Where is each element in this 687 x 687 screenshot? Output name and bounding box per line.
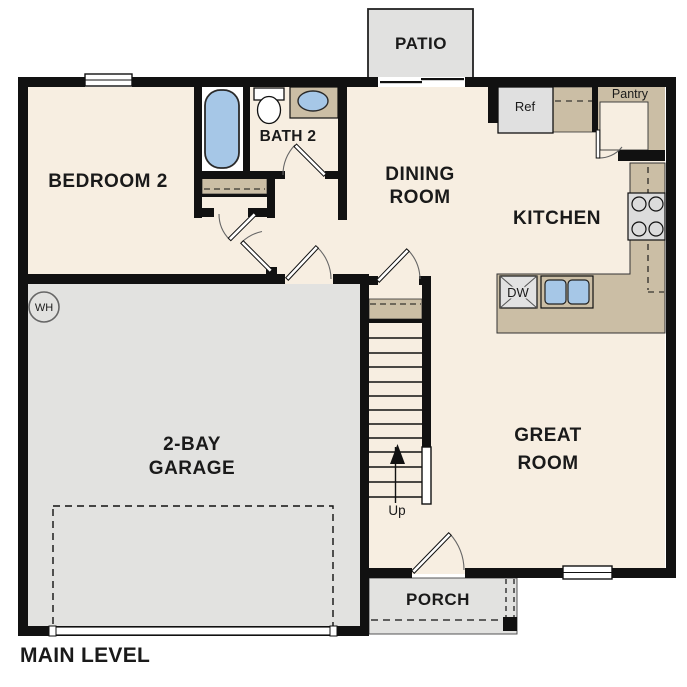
refrigerator-label: Ref bbox=[515, 99, 536, 114]
wall-segment bbox=[465, 77, 676, 87]
door-leaf bbox=[596, 130, 600, 158]
wall-segment bbox=[612, 568, 676, 578]
wall-segment bbox=[592, 87, 598, 132]
wall-segment bbox=[18, 77, 28, 636]
water-heater-label: WH bbox=[35, 302, 53, 314]
wall-segment bbox=[18, 77, 85, 87]
sink-basin bbox=[568, 280, 589, 304]
garage-door bbox=[49, 626, 337, 636]
garage-label: GARAGE bbox=[149, 458, 235, 479]
wall-segment bbox=[333, 274, 360, 284]
kitchen-label: KITCHEN bbox=[513, 208, 601, 229]
bath2-label: BATH 2 bbox=[260, 128, 317, 145]
closet-shelf bbox=[202, 178, 267, 194]
bedroom-closet bbox=[202, 178, 267, 197]
wall-segment bbox=[325, 171, 347, 179]
wall-segment bbox=[194, 171, 285, 179]
counter bbox=[553, 87, 598, 132]
stairs-up-label: Up bbox=[388, 503, 405, 518]
water-heater-icon: WH bbox=[29, 292, 59, 322]
closet-edge bbox=[202, 194, 267, 197]
kitchen-sink-icon bbox=[541, 276, 593, 308]
closet-shelf bbox=[369, 299, 422, 319]
great-room-label: GREAT bbox=[514, 425, 582, 446]
garage-door-jamb bbox=[49, 626, 56, 636]
pantry-label: Pantry bbox=[612, 87, 649, 101]
wall-segment bbox=[422, 276, 431, 447]
wall-segment bbox=[488, 87, 498, 123]
plan-title: MAIN LEVEL bbox=[20, 644, 150, 667]
slider-panel bbox=[380, 81, 422, 83]
wall-segment bbox=[194, 208, 214, 217]
patio-label: PATIO bbox=[395, 34, 447, 53]
coat-closet bbox=[369, 299, 422, 323]
closet-edge bbox=[369, 319, 422, 323]
bedroom2-label: BEDROOM 2 bbox=[48, 171, 168, 192]
wall-segment bbox=[465, 568, 563, 578]
porch-post bbox=[503, 617, 517, 631]
wall-segment bbox=[360, 274, 369, 636]
wall-segment bbox=[369, 276, 378, 285]
bathtub-icon bbox=[205, 90, 239, 168]
stove-icon bbox=[628, 193, 665, 240]
toilet-bowl bbox=[258, 97, 281, 124]
garage-floor bbox=[28, 284, 360, 626]
sink-basin bbox=[545, 280, 566, 304]
wall-segment bbox=[18, 274, 285, 284]
wall-segment bbox=[194, 87, 202, 218]
pantry-floor bbox=[600, 102, 648, 150]
slider-panel bbox=[421, 78, 464, 80]
bath-sink-icon bbox=[290, 87, 338, 118]
sink-basin bbox=[298, 91, 328, 111]
floor-plan-canvas: WH bbox=[0, 0, 687, 687]
wall-segment bbox=[338, 77, 347, 220]
sliding-glass-door bbox=[378, 77, 465, 87]
garage-label: 2-BAY bbox=[163, 434, 221, 455]
dining-room-label: ROOM bbox=[389, 187, 450, 208]
garage-door-panel bbox=[53, 627, 333, 635]
great-room-label: ROOM bbox=[517, 453, 578, 474]
floor-plan: WH bbox=[0, 0, 687, 687]
wall-segment bbox=[243, 87, 250, 171]
wall-segment bbox=[618, 150, 665, 161]
dining-room-label: DINING bbox=[385, 164, 455, 185]
porch-label: PORCH bbox=[406, 590, 470, 609]
dishwasher-label: DW bbox=[507, 285, 529, 300]
garage-door-jamb bbox=[330, 626, 337, 636]
wall-segment bbox=[666, 77, 676, 578]
stair-railing bbox=[422, 447, 431, 504]
